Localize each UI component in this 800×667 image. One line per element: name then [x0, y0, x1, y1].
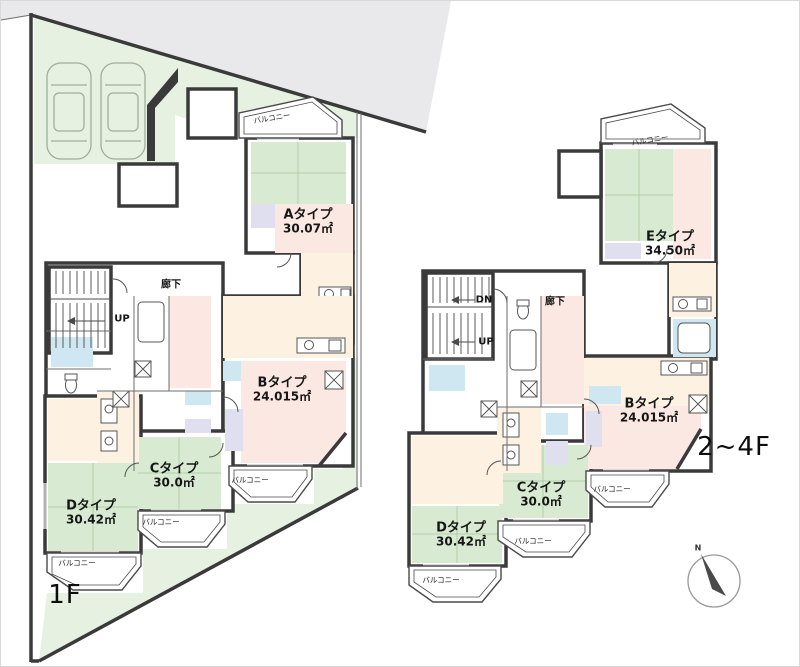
unit-name: Bタイプ: [620, 398, 678, 412]
unit-name: Cタイプ: [150, 463, 199, 477]
kitchen-icon: [661, 361, 707, 375]
floorplan-graphic: [1, 1, 800, 667]
unit-name: Bタイプ: [253, 377, 311, 391]
shaft-icon: [113, 391, 129, 407]
entry-porch-1f: [188, 89, 236, 138]
unit-label-e: Eタイプ 34.50㎡: [645, 231, 695, 258]
shaft-icon: [689, 395, 707, 413]
kitchen-icon: [297, 338, 345, 353]
bathtub-icon: [138, 302, 164, 342]
unit-area: 30.0㎡: [150, 477, 199, 490]
unit-area: 30.42㎡: [66, 514, 116, 527]
shaft-icon: [521, 381, 537, 397]
unit-name: Aタイプ: [283, 209, 333, 223]
unit-label-a: Aタイプ 30.07㎡: [283, 209, 333, 236]
unit-name: Eタイプ: [645, 231, 695, 245]
floorplan-page: Aタイプ 30.07㎡ Bタイプ 24.015㎡ Cタイプ 30.0㎡ Dタイプ…: [0, 0, 800, 667]
stairs-up-label-1f: UP: [114, 314, 129, 325]
floor-label-upper: 2~4F: [697, 432, 771, 462]
unit-label-d-upper: Dタイプ 30.42㎡: [436, 522, 486, 549]
stairs-dn-label-upper: DN: [476, 295, 493, 306]
balcony-label-c: バルコニー: [142, 517, 179, 528]
unit-area: 24.015㎡: [620, 412, 678, 425]
unit-name: Dタイプ: [66, 500, 116, 514]
kitchen-icon: [673, 297, 711, 311]
unit-label-b-upper: Bタイプ 24.015㎡: [620, 398, 678, 425]
compass-icon: [688, 554, 740, 607]
stairs-up-label-upper: UP: [478, 337, 493, 348]
toilet-icon: [65, 374, 77, 393]
entry-porch-upper: [559, 151, 601, 197]
unit-area: 30.07㎡: [283, 223, 333, 236]
unit-label-c: Cタイプ 30.0㎡: [150, 463, 199, 490]
floor-label-1f: 1F: [48, 580, 82, 610]
unit-area: 24.015㎡: [253, 391, 311, 404]
balcony-label-c-upper: バルコニー: [514, 536, 551, 547]
balcony-label-b-upper: バルコニー: [593, 484, 630, 495]
corridor-label-upper: 廊下: [545, 293, 565, 308]
shaft-icon: [481, 401, 497, 417]
entrance-structure: [119, 164, 177, 206]
bathtub-icon: [510, 330, 536, 370]
balcony-label-d: バルコニー: [58, 558, 95, 569]
shaft-icon: [135, 361, 151, 377]
unit-area: 30.0㎡: [517, 496, 566, 509]
shaft-icon: [325, 371, 343, 389]
corridor-label-1f: 廊下: [161, 276, 181, 291]
balcony-label-d-upper: バルコニー: [422, 575, 459, 586]
balcony-label-b: バルコニー: [231, 475, 268, 486]
unit-label-c-upper: Cタイプ 30.0㎡: [517, 482, 566, 509]
toilet-icon: [517, 300, 529, 319]
unit-name: Dタイプ: [436, 522, 486, 536]
bathtub-icon: [678, 323, 710, 353]
unit-area: 34.50㎡: [645, 245, 695, 258]
compass-north-label: N: [695, 544, 702, 553]
unit-label-b: Bタイプ 24.015㎡: [253, 377, 311, 404]
unit-area: 30.42㎡: [436, 536, 486, 549]
unit-label-d: Dタイプ 30.42㎡: [66, 500, 116, 527]
unit-name: Cタイプ: [517, 482, 566, 496]
